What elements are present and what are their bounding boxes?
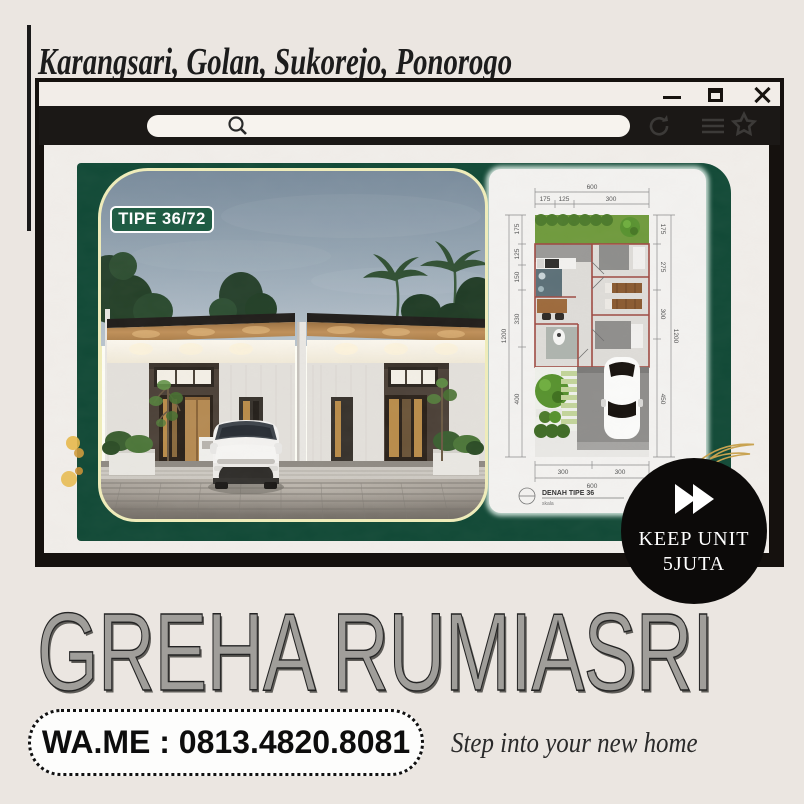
svg-text:600: 600 (587, 483, 598, 490)
svg-text:275: 275 (659, 262, 666, 273)
svg-text:150: 150 (514, 271, 521, 282)
svg-text:175: 175 (514, 223, 521, 234)
svg-text:125: 125 (514, 248, 521, 259)
svg-text:330: 330 (514, 313, 521, 324)
svg-text:300: 300 (659, 309, 666, 320)
svg-text:175: 175 (659, 224, 666, 235)
svg-text:400: 400 (514, 393, 521, 404)
svg-text:300: 300 (606, 196, 617, 203)
svg-text:1200: 1200 (672, 329, 679, 344)
svg-text:125: 125 (559, 196, 570, 203)
svg-text:DENAH TIPE 36: DENAH TIPE 36 (542, 490, 594, 497)
svg-text:1200: 1200 (501, 328, 508, 343)
svg-text:450: 450 (659, 394, 666, 405)
svg-text:600: 600 (587, 184, 598, 191)
svg-text:skala: skala (542, 501, 554, 507)
svg-text:300: 300 (558, 469, 569, 476)
svg-text:300: 300 (615, 469, 626, 476)
svg-text:175: 175 (540, 196, 551, 203)
